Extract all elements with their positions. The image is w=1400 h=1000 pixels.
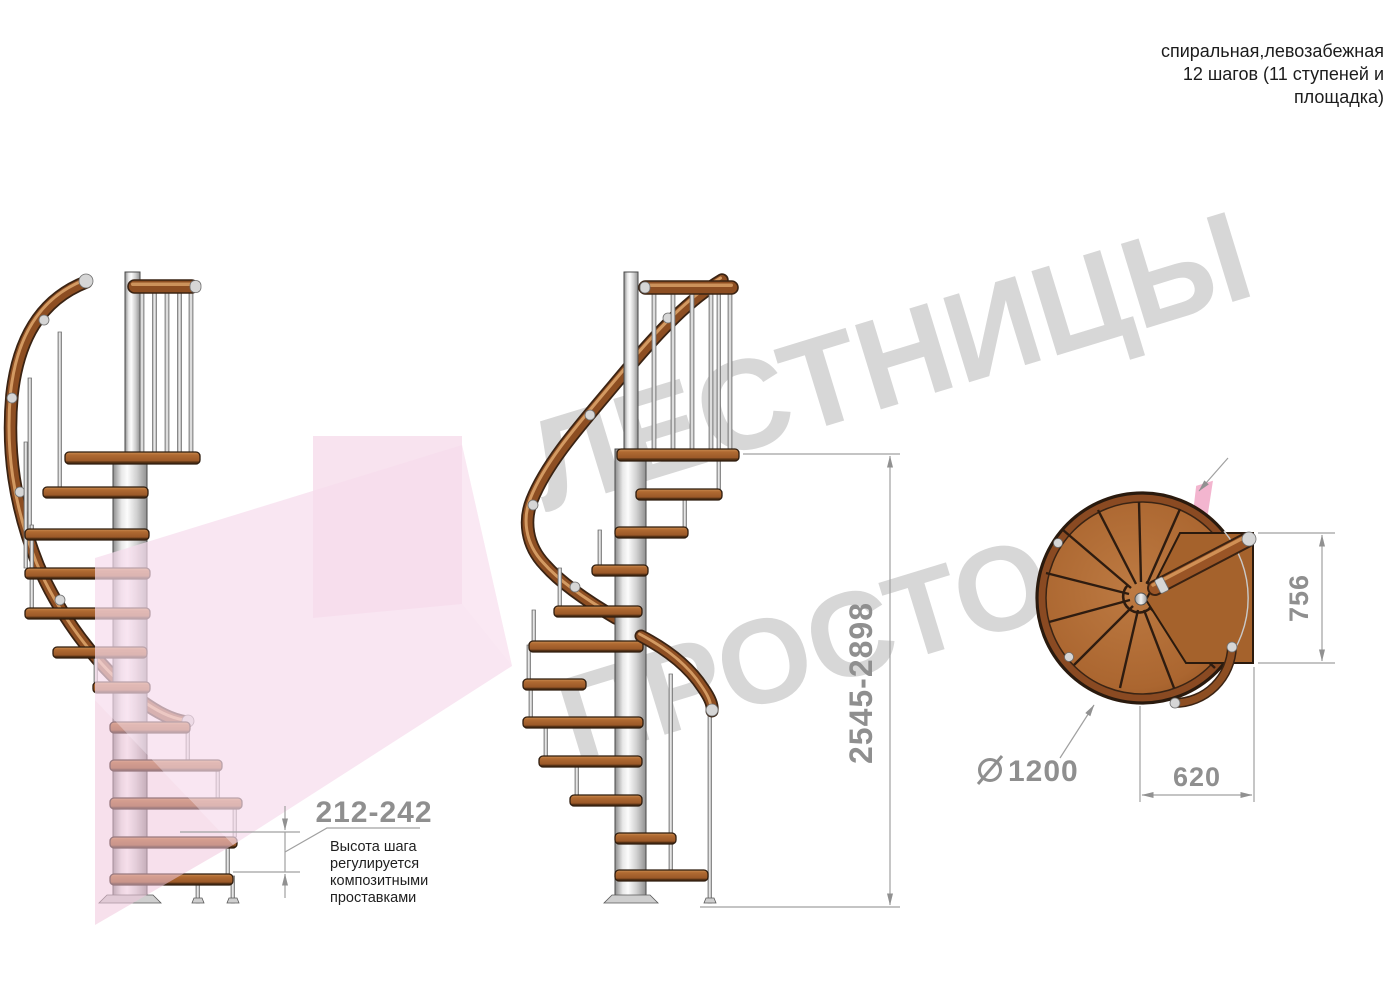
pink-arrow-watermark <box>95 436 512 925</box>
technical-drawing-canvas: ЛЕСТНИЦЫ ПРОСТО.РУ <box>0 0 1400 1000</box>
handrail-cap <box>79 274 93 288</box>
diameter-sign-icon <box>978 756 1002 784</box>
landing-depth-value: 756 <box>1284 574 1314 622</box>
note-line: композитными <box>330 873 428 889</box>
note-line: Высота шага <box>330 839 417 855</box>
total-height-value: 2545-2898 <box>843 602 879 764</box>
title-line3: площадка) <box>1294 87 1384 107</box>
note-line: регулируется <box>330 856 419 872</box>
title-line2: 12 шагов (11 ступеней и <box>1183 64 1384 84</box>
title-line1: спиральная,левозабежная <box>1161 41 1384 61</box>
handrail-end-cap <box>706 704 718 716</box>
step-height-note: Высота шага регулируется композитными пр… <box>330 839 428 906</box>
step-height-value: 212-242 <box>315 796 432 829</box>
dimension-landing-depth: 756 <box>1258 533 1335 663</box>
drawing-title: спиральная,левозабежная 12 шагов (11 сту… <box>1161 41 1384 107</box>
plan-center-post <box>1135 593 1147 605</box>
landing-width-value: 620 <box>1173 762 1221 792</box>
drawing-page: ЛЕСТНИЦЫ ПРОСТО.РУ <box>0 0 1400 1000</box>
diameter-value: 1200 <box>1008 755 1079 788</box>
pole-base-flange <box>604 895 658 903</box>
note-line: проставками <box>330 890 416 906</box>
